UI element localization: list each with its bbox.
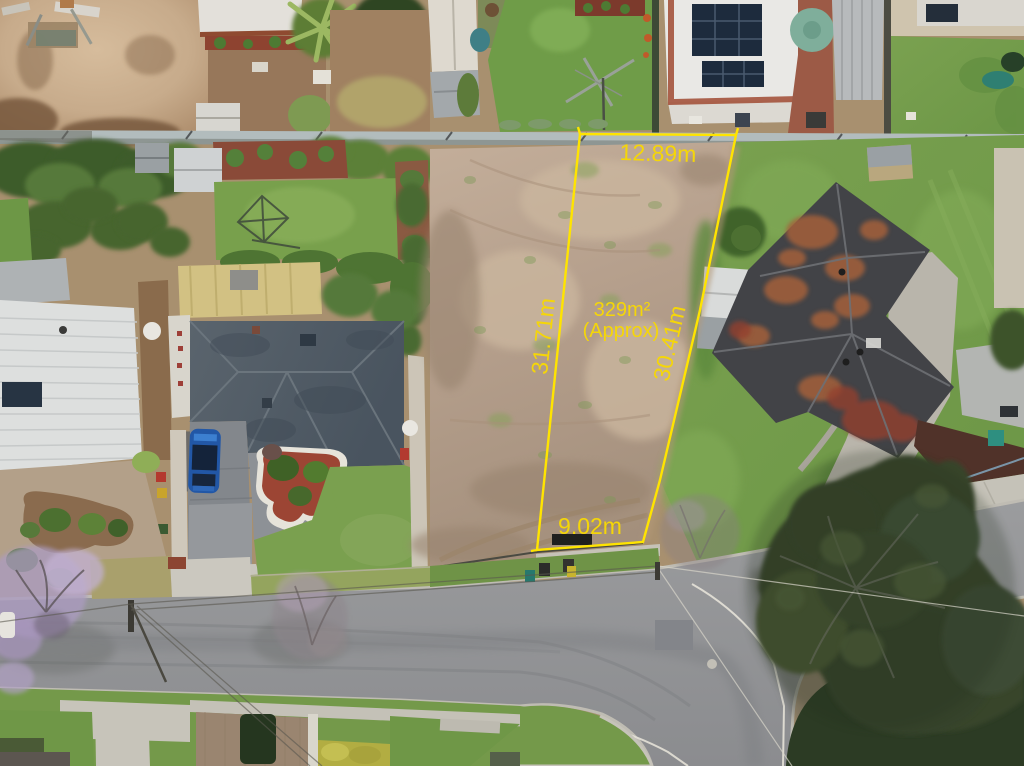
- svg-text:12.89m: 12.89m: [619, 139, 696, 167]
- svg-text:329m²: 329m²: [594, 299, 651, 321]
- svg-text:9.02m: 9.02m: [558, 513, 622, 539]
- svg-text:(Approx): (Approx): [583, 320, 660, 342]
